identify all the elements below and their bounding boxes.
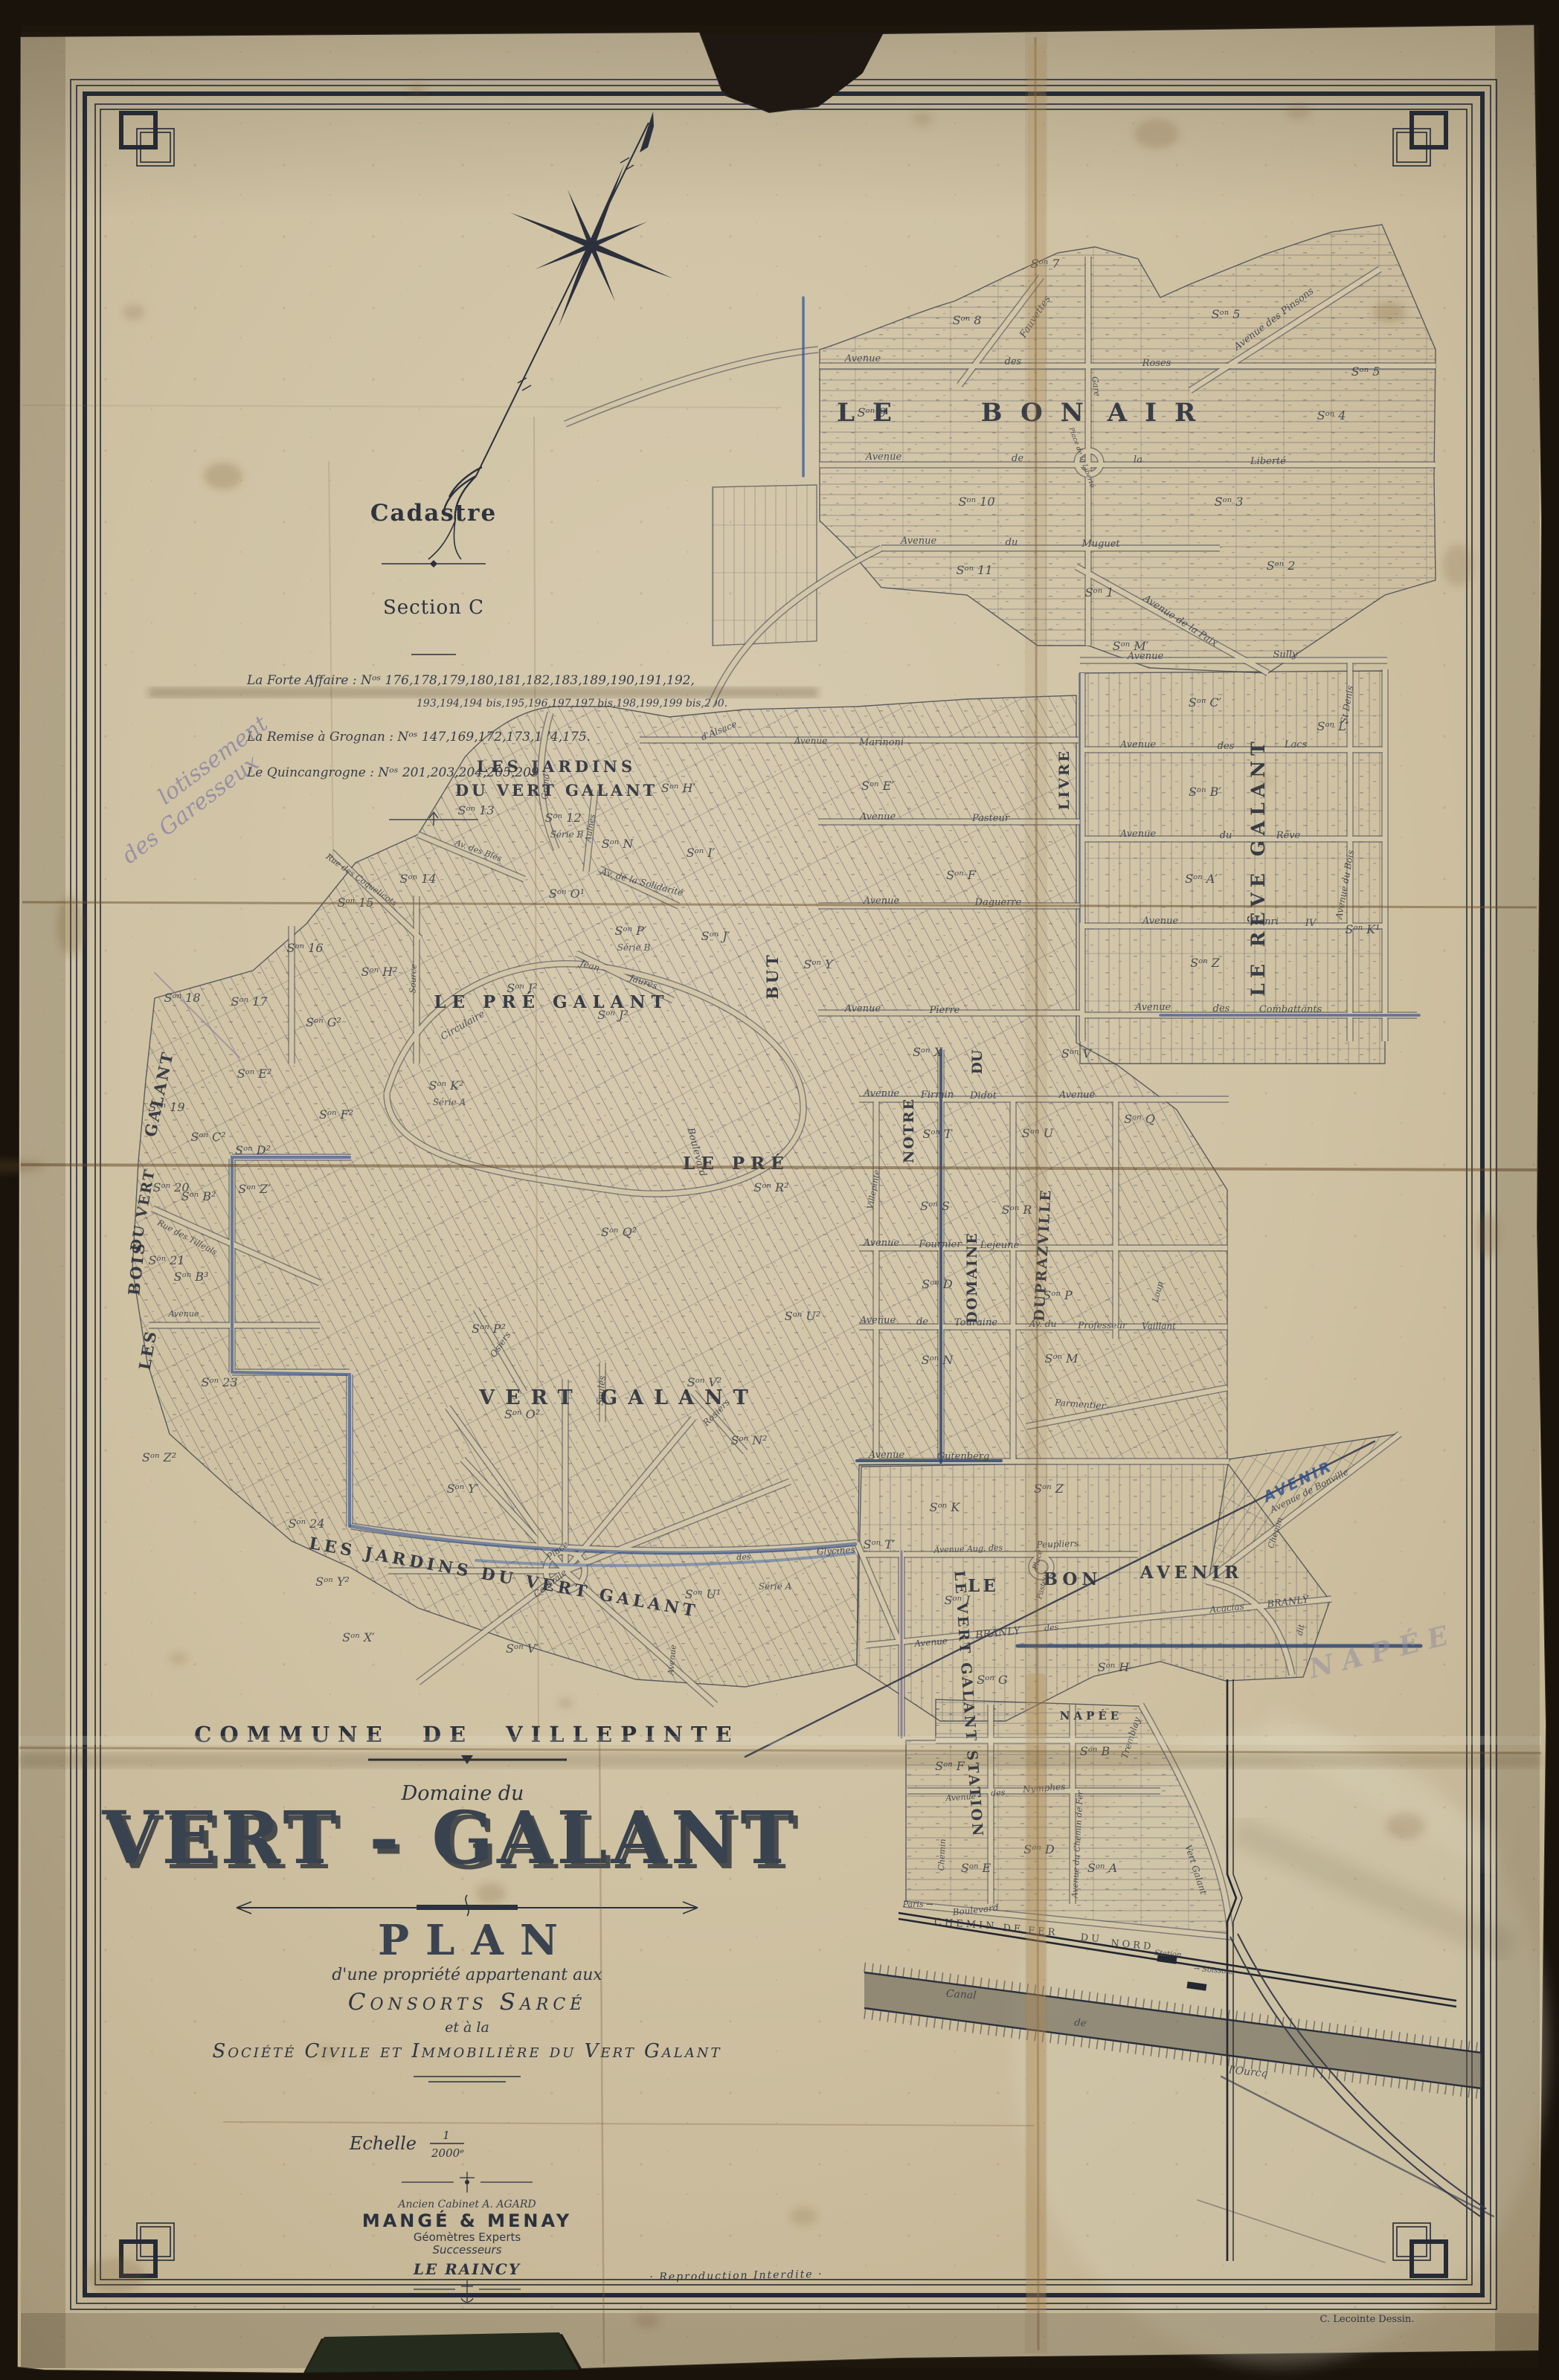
map-label-st: Avenue (1134, 1002, 1171, 1013)
map-label-sec: Sᵒⁿ 1 (1085, 585, 1114, 599)
map-label-sec: Sᵒⁿ H (1098, 1660, 1131, 1674)
map-label-area: AIR (1107, 398, 1214, 428)
map-label-st: Didot (969, 1090, 997, 1101)
map-label-sec: Sᵒⁿ 8 (953, 313, 982, 327)
map-label-st: Muguet (1081, 538, 1120, 550)
map-label-st: Avenue (844, 1003, 881, 1014)
map-label-rail: DE (1003, 1923, 1024, 1935)
map-label-ser: Série A (759, 1581, 792, 1592)
surveyors-city: LE RAINCY (413, 2260, 521, 2278)
map-label-area: LE (968, 1576, 999, 1596)
map-label-sec: Sᵒⁿ 5 (1351, 364, 1380, 379)
map-label-st: Avenue (863, 1088, 900, 1099)
map-label-sec: Sᵒⁿ F² (319, 1107, 353, 1122)
map-label-sec: Sᵒⁿ U¹ (685, 1587, 721, 1601)
map-canvas: Cadastre Section C La Forte Affaire : Nᵒ… (0, 0, 1559, 2380)
map-label-sec: Sᵒⁿ 18 (164, 991, 200, 1005)
map-label-sec: Sᵒⁿ E² (237, 1067, 272, 1081)
map-label-sec: Sᵒⁿ H² (361, 965, 397, 979)
map-label-sec: Sᵒⁿ D (922, 1277, 953, 1291)
map-label-sec: Sᵒⁿ K (930, 1500, 961, 1514)
map-label-st: Henri (1250, 916, 1279, 927)
map-label-st: IV (1305, 918, 1317, 929)
map-label-sec: Sᵒⁿ P (1043, 1288, 1073, 1302)
plan-heading: PLAN (378, 1916, 574, 1965)
map-label-st: Rêve (1276, 830, 1301, 841)
map-label-st: Avenue (868, 1450, 905, 1461)
map-label-ser: Série B (617, 942, 651, 953)
map-label-st: Roses (1142, 358, 1171, 369)
map-label-area: NAPÉE (1060, 1709, 1123, 1723)
map-label-sec: Sᵒⁿ O² (504, 1407, 540, 1421)
map-label-sec: Sᵒⁿ A′ (1185, 872, 1218, 886)
map-label-sec: Sᵒⁿ F (946, 868, 977, 882)
map-label-sec: Sᵒⁿ G (977, 1673, 1008, 1687)
map-label-st: Pasteur (971, 813, 1010, 824)
surveyors-name: MANGÉ & MENAY (362, 2210, 572, 2231)
map-label-sec: Sᵒⁿ C² (190, 1130, 225, 1144)
map-label-st: Avenue (863, 1238, 900, 1249)
map-label-sec: Sᵒⁿ P² (472, 1322, 506, 1336)
map-label-sec: Sᵒⁿ 10 (958, 495, 994, 509)
surveyors-profession: Géomètres Experts (414, 2231, 521, 2244)
plan-line1: d'une propriété appartenant aux (332, 1966, 602, 1984)
map-label-sec: Sᵒⁿ D² (235, 1143, 271, 1157)
map-label-st: Avenue (865, 451, 902, 463)
map-label-st: Avenue (168, 1309, 199, 1319)
map-label-sec: Sᵒⁿ N (922, 1353, 954, 1367)
company-name: Société Civile et Immobilière du Vert Ga… (212, 2040, 721, 2062)
map-label-st: Fournier (918, 1239, 962, 1250)
map-label-area: LE PRÉ GALANT (434, 992, 669, 1012)
map-label-st: de (1074, 2017, 1087, 2029)
map-label-sec: Sᵒⁿ K¹ (1345, 922, 1380, 936)
map-label-st: du (1006, 537, 1018, 548)
map-label-sec: Sᵒⁿ 13 (457, 803, 494, 817)
map-label-st: Firmin (920, 1090, 954, 1101)
map-label-st: Avenue (859, 1315, 896, 1326)
map-label-st: des (1213, 1003, 1230, 1014)
map-label-sec: Sᵒⁿ 11 (956, 563, 992, 577)
map-label-st: Sully (1273, 649, 1299, 660)
map-label-sec: Sᵒⁿ V′ (506, 1641, 539, 1656)
map-label-ser: Série B (550, 829, 584, 840)
map-label-st: Paris → (902, 1900, 933, 1909)
map-label-sec: Sᵒⁿ 9 (858, 405, 887, 419)
map-label-sec: Sᵒⁿ C′ (1189, 695, 1222, 710)
map-label-sec: Sᵒⁿ Z (1190, 956, 1221, 970)
map-label-sec: Sᵒⁿ S (920, 1199, 950, 1213)
plan-line2: et à la (445, 2019, 489, 2036)
map-label-st: Pierre (929, 1005, 960, 1016)
map-label-sec: Sᵒⁿ 23 (201, 1375, 237, 1389)
map-label-sec: Sᵒⁿ E (961, 1861, 991, 1875)
map-label-sec: Sᵒⁿ P′ (614, 924, 646, 938)
map-label-st: du (1220, 830, 1232, 841)
map-label-st: Avenue (844, 353, 881, 364)
owners-name: Consorts Sarcé (348, 1989, 586, 2016)
map-label-sec: Sᵒⁿ Y′ (447, 1482, 479, 1496)
map-label-st: Lacs (1284, 739, 1308, 750)
map-label-sec: Sᵒⁿ 19 (148, 1100, 184, 1114)
map-label-area: DU (969, 1049, 986, 1074)
map-label-sec: Sᵒⁿ J′ (701, 929, 730, 943)
map-label-sec: Sᵒⁿ I (944, 1593, 971, 1607)
map-label-sec: Sᵒⁿ A (1087, 1861, 1117, 1875)
map-label-st: Vaillant (1142, 1321, 1176, 1331)
map-label-st: Avenue (859, 811, 896, 823)
map-label-sec: Sᵒⁿ B³ (174, 1270, 209, 1284)
map-label-st: des (1218, 741, 1235, 752)
map-label-sec: Sᵒⁿ I² (507, 981, 537, 995)
map-label-st: Avenue (1142, 916, 1179, 927)
map-label-area: BON (1044, 1569, 1102, 1589)
map-label-sec: Sᵒⁿ 14 (399, 872, 436, 886)
map-label-sec: Sᵒⁿ U² (785, 1309, 821, 1323)
map-label-sec: Sᵒⁿ 5 (1212, 307, 1241, 321)
scale-denominator: 2000ᵉ (431, 2146, 464, 2160)
map-label-st: Canal (945, 1988, 977, 2002)
map-label-sec: Sᵒⁿ I′ (687, 846, 716, 860)
map-label-area: DU VERT GALANT (455, 781, 658, 800)
map-label-st: Touraine (954, 1317, 997, 1328)
map-label-st: Avenue (794, 736, 828, 746)
surveyors-successors: Successeurs (432, 2243, 501, 2257)
map-label-sec: Sᵒⁿ Y² (315, 1575, 350, 1589)
map-label-sec: Sᵒⁿ O¹ (549, 887, 585, 901)
map-label-area: AVENIR (1139, 1563, 1243, 1583)
map-label-st: dit (1295, 1623, 1307, 1636)
map-label-sec: Sᵒⁿ M (1044, 1351, 1079, 1366)
map-label-st: Professeur (1077, 1320, 1128, 1331)
photographed-map: Cadastre Section C La Forte Affaire : Nᵒ… (0, 0, 1559, 2380)
map-label-sec: Sᵒⁿ J² (597, 1008, 629, 1022)
map-label-sec: Sᵒⁿ B² (181, 1189, 216, 1203)
map-label-sec: Sᵒⁿ 3 (1215, 495, 1244, 509)
map-label-sec: Sᵒⁿ T (922, 1127, 953, 1141)
map-label-st: Chemin (936, 1839, 948, 1871)
map-label-sec: Sᵒⁿ G² (306, 1015, 341, 1029)
map-label-st: Combattants (1259, 1004, 1322, 1015)
legend-title: Cadastre (370, 500, 497, 527)
map-label-area: DOMAINE (964, 1232, 980, 1324)
map-label-st: Lejeune (980, 1240, 1020, 1251)
map-label-st: Avenue (1127, 651, 1164, 662)
map-label-st: Source (408, 964, 418, 994)
legend-section: Section C (383, 596, 484, 619)
map-label-sec: Sᵒⁿ Q (1124, 1112, 1155, 1126)
map-label-area: LES JARDINS (477, 757, 636, 776)
map-label-sec: Sᵒⁿ 12 (544, 811, 581, 825)
map-label-sec: Sᵒⁿ Q² (601, 1225, 637, 1239)
map-label-sec: Sᵒⁿ N (602, 837, 634, 851)
legend-line1a: La Forte Affaire : Nᵒˢ 176,178,179,180,1… (246, 673, 695, 688)
map-label-ser: Série A (433, 1097, 466, 1107)
map-label-st: Marinoni (858, 737, 904, 748)
map-label-sec: Sᵒⁿ Z² (142, 1450, 176, 1464)
map-label-st: Liberté (1250, 456, 1286, 467)
map-label-sec: Sᵒⁿ 4 (1317, 408, 1346, 422)
map-label-sec: Sᵒⁿ 24 (288, 1517, 324, 1531)
map-label-area: NOTRE (901, 1098, 917, 1163)
map-label-st: des (991, 1787, 1006, 1798)
map-label-sec: Sᵒⁿ V (1061, 1046, 1093, 1061)
map-label-st: la (1134, 454, 1142, 466)
map-label-sec: Sᵒⁿ 17 (231, 994, 268, 1009)
map-label-sec: Sᵒⁿ X (913, 1045, 943, 1059)
map-label-st: Glycines (817, 1545, 855, 1557)
map-label-sec: Sᵒⁿ 2 (1267, 559, 1296, 573)
map-label-st: Gutenberg (937, 1451, 990, 1462)
map-label-sec: Sᵒⁿ Y (803, 957, 834, 971)
scale-word: Echelle (349, 2133, 417, 2154)
map-label-sec: Sᵒⁿ V² (687, 1375, 722, 1389)
map-label-sec: Sᵒⁿ B′ (1189, 785, 1221, 799)
map-label-area: LIVRE (1056, 749, 1073, 810)
map-label-sec: Sᵒⁿ E′ (861, 779, 894, 793)
map-label-sec: Sᵒⁿ R² (753, 1180, 788, 1194)
map-label-st: Avenue (1119, 739, 1157, 750)
map-label-area: BUT (763, 952, 782, 1000)
map-label-st: de (1012, 453, 1023, 464)
cabinet-credit: Ancien Cabinet A. AGARD (396, 2199, 536, 2210)
map-label-st: Avenue (1119, 829, 1157, 840)
map-label-sec: Sᵒⁿ 16 (286, 941, 323, 955)
map-label-sec: Sᵒⁿ 21 (148, 1253, 184, 1267)
map-label-sec: Sᵒⁿ N² (730, 1433, 767, 1447)
scale-numerator: 1 (443, 2129, 450, 2142)
map-label-st: des (736, 1551, 751, 1562)
map-label-sec: Sᵒⁿ Z′ (238, 1182, 271, 1196)
map-label-sec: Sᵒⁿ T′ (864, 1537, 896, 1551)
map-label-sec: Sᵒⁿ X′ (342, 1630, 375, 1644)
map-label-st: de (916, 1316, 928, 1328)
map-label-st: Avenue (1058, 1090, 1096, 1101)
map-label-st: Avenue (900, 535, 937, 547)
map-label-sec: Sᵒⁿ K² (428, 1078, 463, 1093)
map-label-sec: Sᵒⁿ H′ (661, 781, 696, 795)
map-title: VERT - GALANT (101, 1795, 798, 1880)
map-label-st: des (1005, 356, 1022, 367)
map-label-rail: DU (1080, 1932, 1103, 1946)
